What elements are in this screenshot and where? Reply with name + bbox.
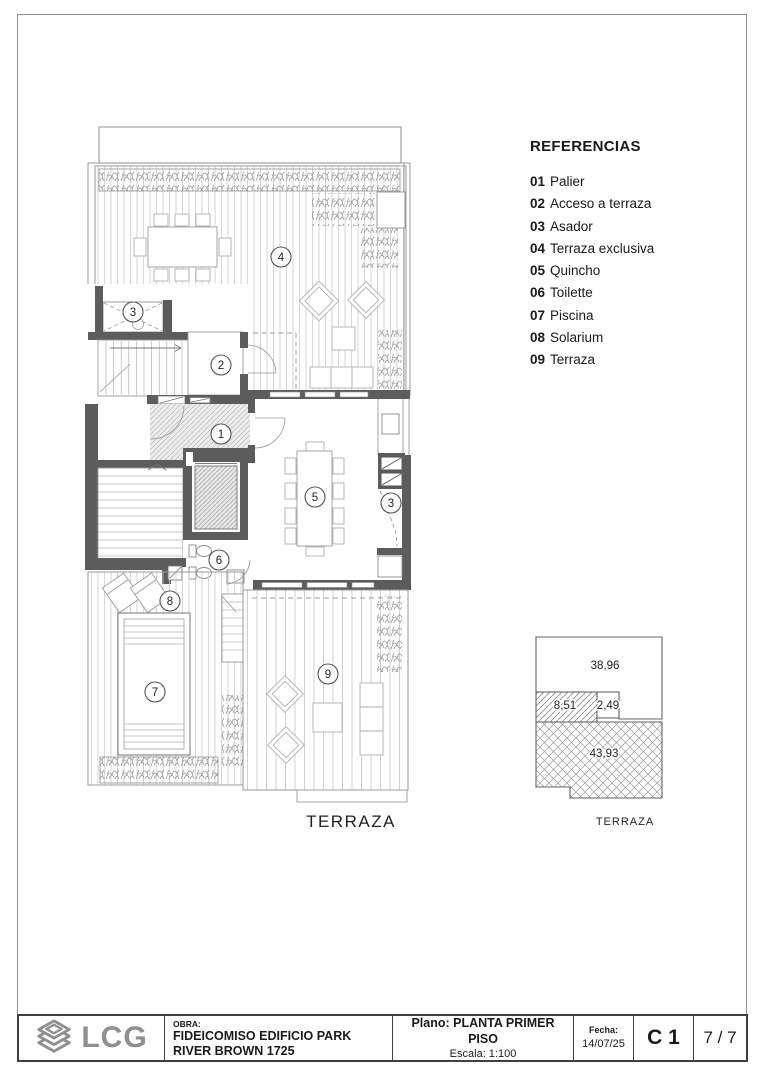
bubble-5-label: 5: [312, 492, 318, 504]
key-area-value-1: 38,96: [591, 660, 620, 672]
lower-terrace: [85, 558, 408, 802]
ref-label: Asador: [550, 219, 593, 234]
ref-label: Acceso a terraza: [550, 196, 651, 211]
plano-value: PLANTA PRIMER PISO: [453, 1016, 554, 1046]
ref-label: Solarium: [550, 330, 603, 345]
planter-top: [99, 169, 400, 191]
bubble-6: 6: [209, 550, 229, 570]
key-area-cross: [536, 722, 662, 798]
side-table: [332, 327, 355, 350]
key-area-value-3: 2,49: [597, 700, 619, 712]
plano-cell: Plano: PLANTA PRIMER PISO Escala: 1:100: [392, 1016, 573, 1060]
table: [313, 703, 342, 732]
bubble-5: 5: [305, 487, 325, 507]
ref-num: 01: [530, 174, 545, 189]
bubble-9: 9: [318, 664, 338, 684]
ref-num: 07: [530, 308, 545, 323]
key-diagram: 38,96 8,51 2,49 43,93 TERRAZA: [536, 637, 662, 828]
reference-item: 05Quincho: [530, 260, 740, 282]
key-area-value-4: 43,93: [590, 748, 619, 760]
plants-terraza: [377, 596, 402, 672]
ref-label: Terraza: [550, 352, 595, 367]
reference-item: 01Palier: [530, 171, 740, 193]
fecha-cell: Fecha: 14/07/25: [573, 1016, 633, 1060]
sofa: [360, 683, 383, 755]
reference-item: 04Terraza exclusiva: [530, 238, 740, 260]
sofa-upper: [310, 367, 373, 388]
side-stair: [222, 594, 243, 662]
reference-item: 02Acceso a terraza: [530, 193, 740, 215]
toilet: [189, 545, 196, 557]
reference-item: 09Terraza: [530, 349, 740, 371]
wall: [85, 558, 168, 570]
bubble-4: 4: [271, 247, 291, 267]
logo-text: LCG: [81, 1023, 147, 1053]
plants-right: [360, 228, 398, 268]
ref-num: 06: [530, 285, 545, 300]
ref-num: 09: [530, 352, 545, 367]
bubble-6-label: 6: [216, 555, 222, 567]
plants-upper-right: [312, 193, 376, 226]
counter-low: [378, 556, 402, 577]
bubble-7: 7: [145, 682, 165, 702]
plants-right-lower: [378, 330, 402, 392]
ref-label: Toilette: [550, 285, 593, 300]
references-legend: REFERENCIAS 01Palier 02Acceso a terraza …: [530, 138, 740, 372]
bubble-1-label: 1: [218, 429, 224, 441]
ref-num: 05: [530, 263, 545, 278]
bubble-7-label: 7: [152, 687, 158, 699]
bubble-4-label: 4: [278, 252, 285, 264]
storage-box: [377, 192, 405, 228]
counter: [382, 414, 399, 434]
wall-right: [402, 455, 411, 590]
plano-label: Plano:: [411, 1016, 449, 1030]
bubble-3b-label: 3: [388, 498, 394, 510]
reference-item: 07Piscina: [530, 305, 740, 327]
bubble-8-label: 8: [167, 596, 173, 608]
ref-label: Piscina: [550, 308, 594, 323]
edge-tab: [297, 790, 407, 802]
title-block: LCG OBRA: FIDEICOMISO EDIFICIO PARK RIVE…: [17, 1014, 748, 1062]
ref-label: Quincho: [550, 263, 600, 278]
plano-line: Plano: PLANTA PRIMER PISO: [395, 1015, 571, 1048]
bubble-3a-label: 3: [130, 307, 136, 319]
ref-num: 02: [530, 196, 545, 211]
stair-upper: [98, 340, 188, 396]
fecha-value: 14/07/25: [574, 1037, 633, 1051]
roof-overhang: [99, 127, 401, 163]
ref-num: 03: [530, 219, 545, 234]
bubble-3b: 3: [381, 493, 401, 513]
elevator: [183, 448, 248, 540]
bubble-2-label: 2: [218, 360, 224, 372]
quincho-room: [248, 390, 411, 590]
window: [403, 399, 409, 455]
key-diagram-label: TERRAZA: [596, 816, 654, 828]
reference-item: 03Asador: [530, 216, 740, 238]
ref-label: Palier: [550, 174, 585, 189]
ref-num: 04: [530, 241, 545, 256]
bubble-9-label: 9: [325, 669, 331, 681]
wall-left: [85, 404, 98, 565]
stair-lower: [98, 464, 183, 563]
fecha-label: Fecha:: [574, 1025, 633, 1037]
reference-item: 08Solarium: [530, 327, 740, 349]
bubble-1: 1: [211, 424, 231, 444]
plants-middle: [222, 695, 243, 770]
escala-line: Escala: 1:100: [395, 1047, 571, 1061]
ref-label: Terraza exclusiva: [550, 241, 654, 256]
planter-bottom: [100, 757, 218, 783]
key-area-value-2: 8,51: [554, 700, 576, 712]
lcg-logo-icon: [35, 1019, 73, 1057]
logo-cell: LCG: [19, 1016, 164, 1060]
bubble-8: 8: [160, 591, 180, 611]
plan-title-label: TERRAZA: [271, 812, 431, 832]
references-title: REFERENCIAS: [530, 138, 740, 155]
wall: [88, 332, 188, 340]
bubble-2: 2: [211, 355, 231, 375]
obra-value: FIDEICOMISO EDIFICIO PARK RIVER BROWN 17…: [173, 1029, 384, 1059]
obra-cell: OBRA: FIDEICOMISO EDIFICIO PARK RIVER BR…: [164, 1016, 392, 1060]
ref-num: 08: [530, 330, 545, 345]
obra-label: OBRA:: [173, 1019, 384, 1029]
bubble-3a: 3: [123, 302, 143, 322]
sheet-pages-cell: 7 / 7: [693, 1016, 746, 1060]
reference-item: 06Toilette: [530, 282, 740, 304]
sheet-code-cell: C 1: [633, 1016, 693, 1060]
